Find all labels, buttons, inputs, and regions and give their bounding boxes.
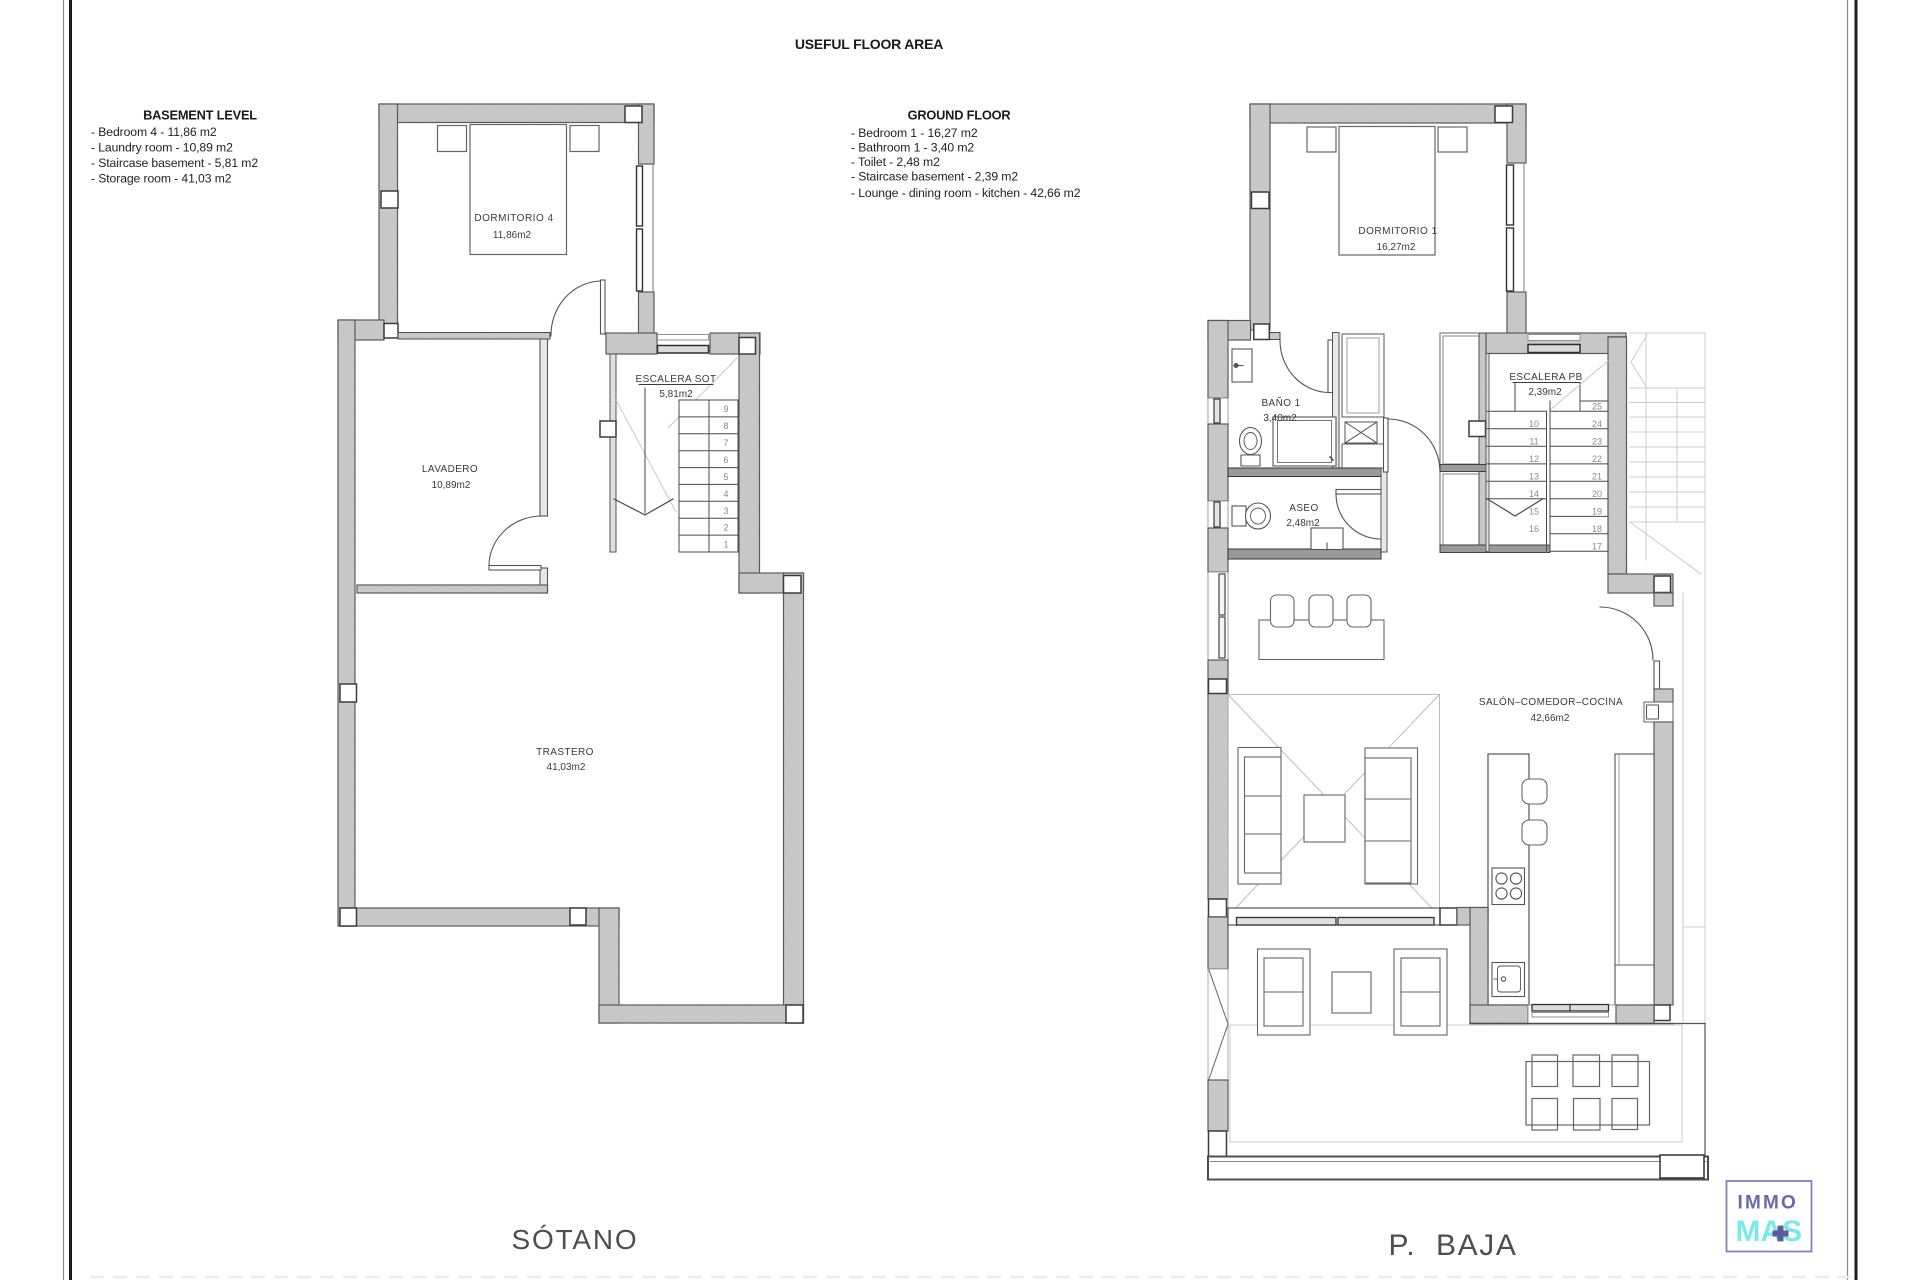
svg-text:TRASTERO: TRASTERO [536, 747, 594, 758]
svg-text:15: 15 [1529, 507, 1539, 517]
svg-text:22: 22 [1592, 454, 1602, 464]
svg-text:25: 25 [1592, 402, 1602, 412]
svg-text:2,39m2: 2,39m2 [1528, 387, 1562, 398]
svg-text:- Bedroom 4 - 11,86 m2: - Bedroom 4 - 11,86 m2 [91, 125, 217, 139]
svg-text:BASEMENT LEVEL: BASEMENT LEVEL [143, 108, 257, 123]
svg-text:IMMO: IMMO [1738, 1193, 1799, 1214]
svg-text:10,89m2: 10,89m2 [432, 480, 471, 491]
svg-text:17: 17 [1592, 542, 1602, 552]
svg-text:ESCALERA PB: ESCALERA PB [1509, 372, 1582, 383]
svg-text:24: 24 [1592, 419, 1602, 429]
svg-text:10: 10 [1529, 419, 1539, 429]
svg-text:23: 23 [1592, 437, 1602, 447]
svg-text:- Bedroom 1 - 16,27 m2: - Bedroom 1 - 16,27 m2 [851, 126, 978, 140]
svg-text:- Staircase basement - 5,81 m2: - Staircase basement - 5,81 m2 [91, 156, 258, 170]
svg-text:MAS: MAS [1736, 1215, 1803, 1248]
svg-text:7: 7 [723, 438, 728, 448]
svg-text:LAVADERO: LAVADERO [422, 464, 478, 475]
svg-text:18: 18 [1592, 524, 1602, 534]
svg-text:SALÓN–COMEDOR–COCINA: SALÓN–COMEDOR–COCINA [1479, 695, 1623, 708]
svg-text:1: 1 [723, 540, 728, 550]
svg-text:8: 8 [723, 421, 728, 431]
svg-text:21: 21 [1592, 472, 1602, 482]
svg-text:3,40m2: 3,40m2 [1263, 413, 1297, 424]
svg-text:- Toilet - 2,48 m2: - Toilet - 2,48 m2 [851, 155, 940, 169]
svg-text:16,27m2: 16,27m2 [1377, 242, 1416, 253]
svg-text:BAÑO 1: BAÑO 1 [1261, 396, 1300, 409]
svg-text:9: 9 [723, 404, 728, 414]
svg-text:P. BAJA: P. BAJA [1389, 1229, 1518, 1262]
svg-text:11,86m2: 11,86m2 [493, 230, 532, 241]
svg-text:ESCALERA SOT: ESCALERA SOT [636, 374, 717, 385]
svg-text:16: 16 [1529, 524, 1539, 534]
svg-text:GROUND FLOOR: GROUND FLOOR [908, 108, 1011, 123]
svg-text:2,48m2: 2,48m2 [1286, 518, 1320, 529]
svg-text:14: 14 [1529, 489, 1539, 499]
svg-text:3: 3 [723, 506, 728, 516]
svg-text:5,81m2: 5,81m2 [659, 389, 693, 400]
svg-text:6: 6 [723, 455, 728, 465]
svg-text:41,03m2: 41,03m2 [547, 762, 586, 773]
svg-text:42,66m2: 42,66m2 [1531, 713, 1570, 724]
svg-text:4: 4 [723, 489, 728, 499]
svg-text:20: 20 [1592, 489, 1602, 499]
svg-text:12: 12 [1529, 454, 1539, 464]
svg-text:2: 2 [723, 523, 728, 533]
svg-text:13: 13 [1529, 472, 1539, 482]
svg-text:5: 5 [723, 472, 728, 482]
svg-text:SÓTANO: SÓTANO [512, 1224, 639, 1255]
svg-text:- Lounge - dining room - kitch: - Lounge - dining room - kitchen - 42,66… [851, 186, 1081, 200]
svg-text:- Laundry room - 10,89 m2: - Laundry room - 10,89 m2 [91, 141, 233, 155]
svg-text:DORMITORIO 1: DORMITORIO 1 [1358, 226, 1437, 237]
svg-text:- Storage room - 41,03 m2: - Storage room - 41,03 m2 [91, 172, 232, 186]
svg-text:- Staircase basement - 2,39 m2: - Staircase basement - 2,39 m2 [851, 170, 1018, 184]
svg-text:19: 19 [1592, 507, 1602, 517]
svg-text:ASEO: ASEO [1289, 503, 1318, 514]
svg-text:USEFUL FLOOR AREA: USEFUL FLOOR AREA [795, 36, 943, 52]
svg-text:11: 11 [1529, 437, 1538, 447]
svg-text:- Bathroom 1 - 3,40 m2: - Bathroom 1 - 3,40 m2 [851, 141, 974, 155]
svg-text:DORMITORIO 4: DORMITORIO 4 [474, 213, 553, 224]
